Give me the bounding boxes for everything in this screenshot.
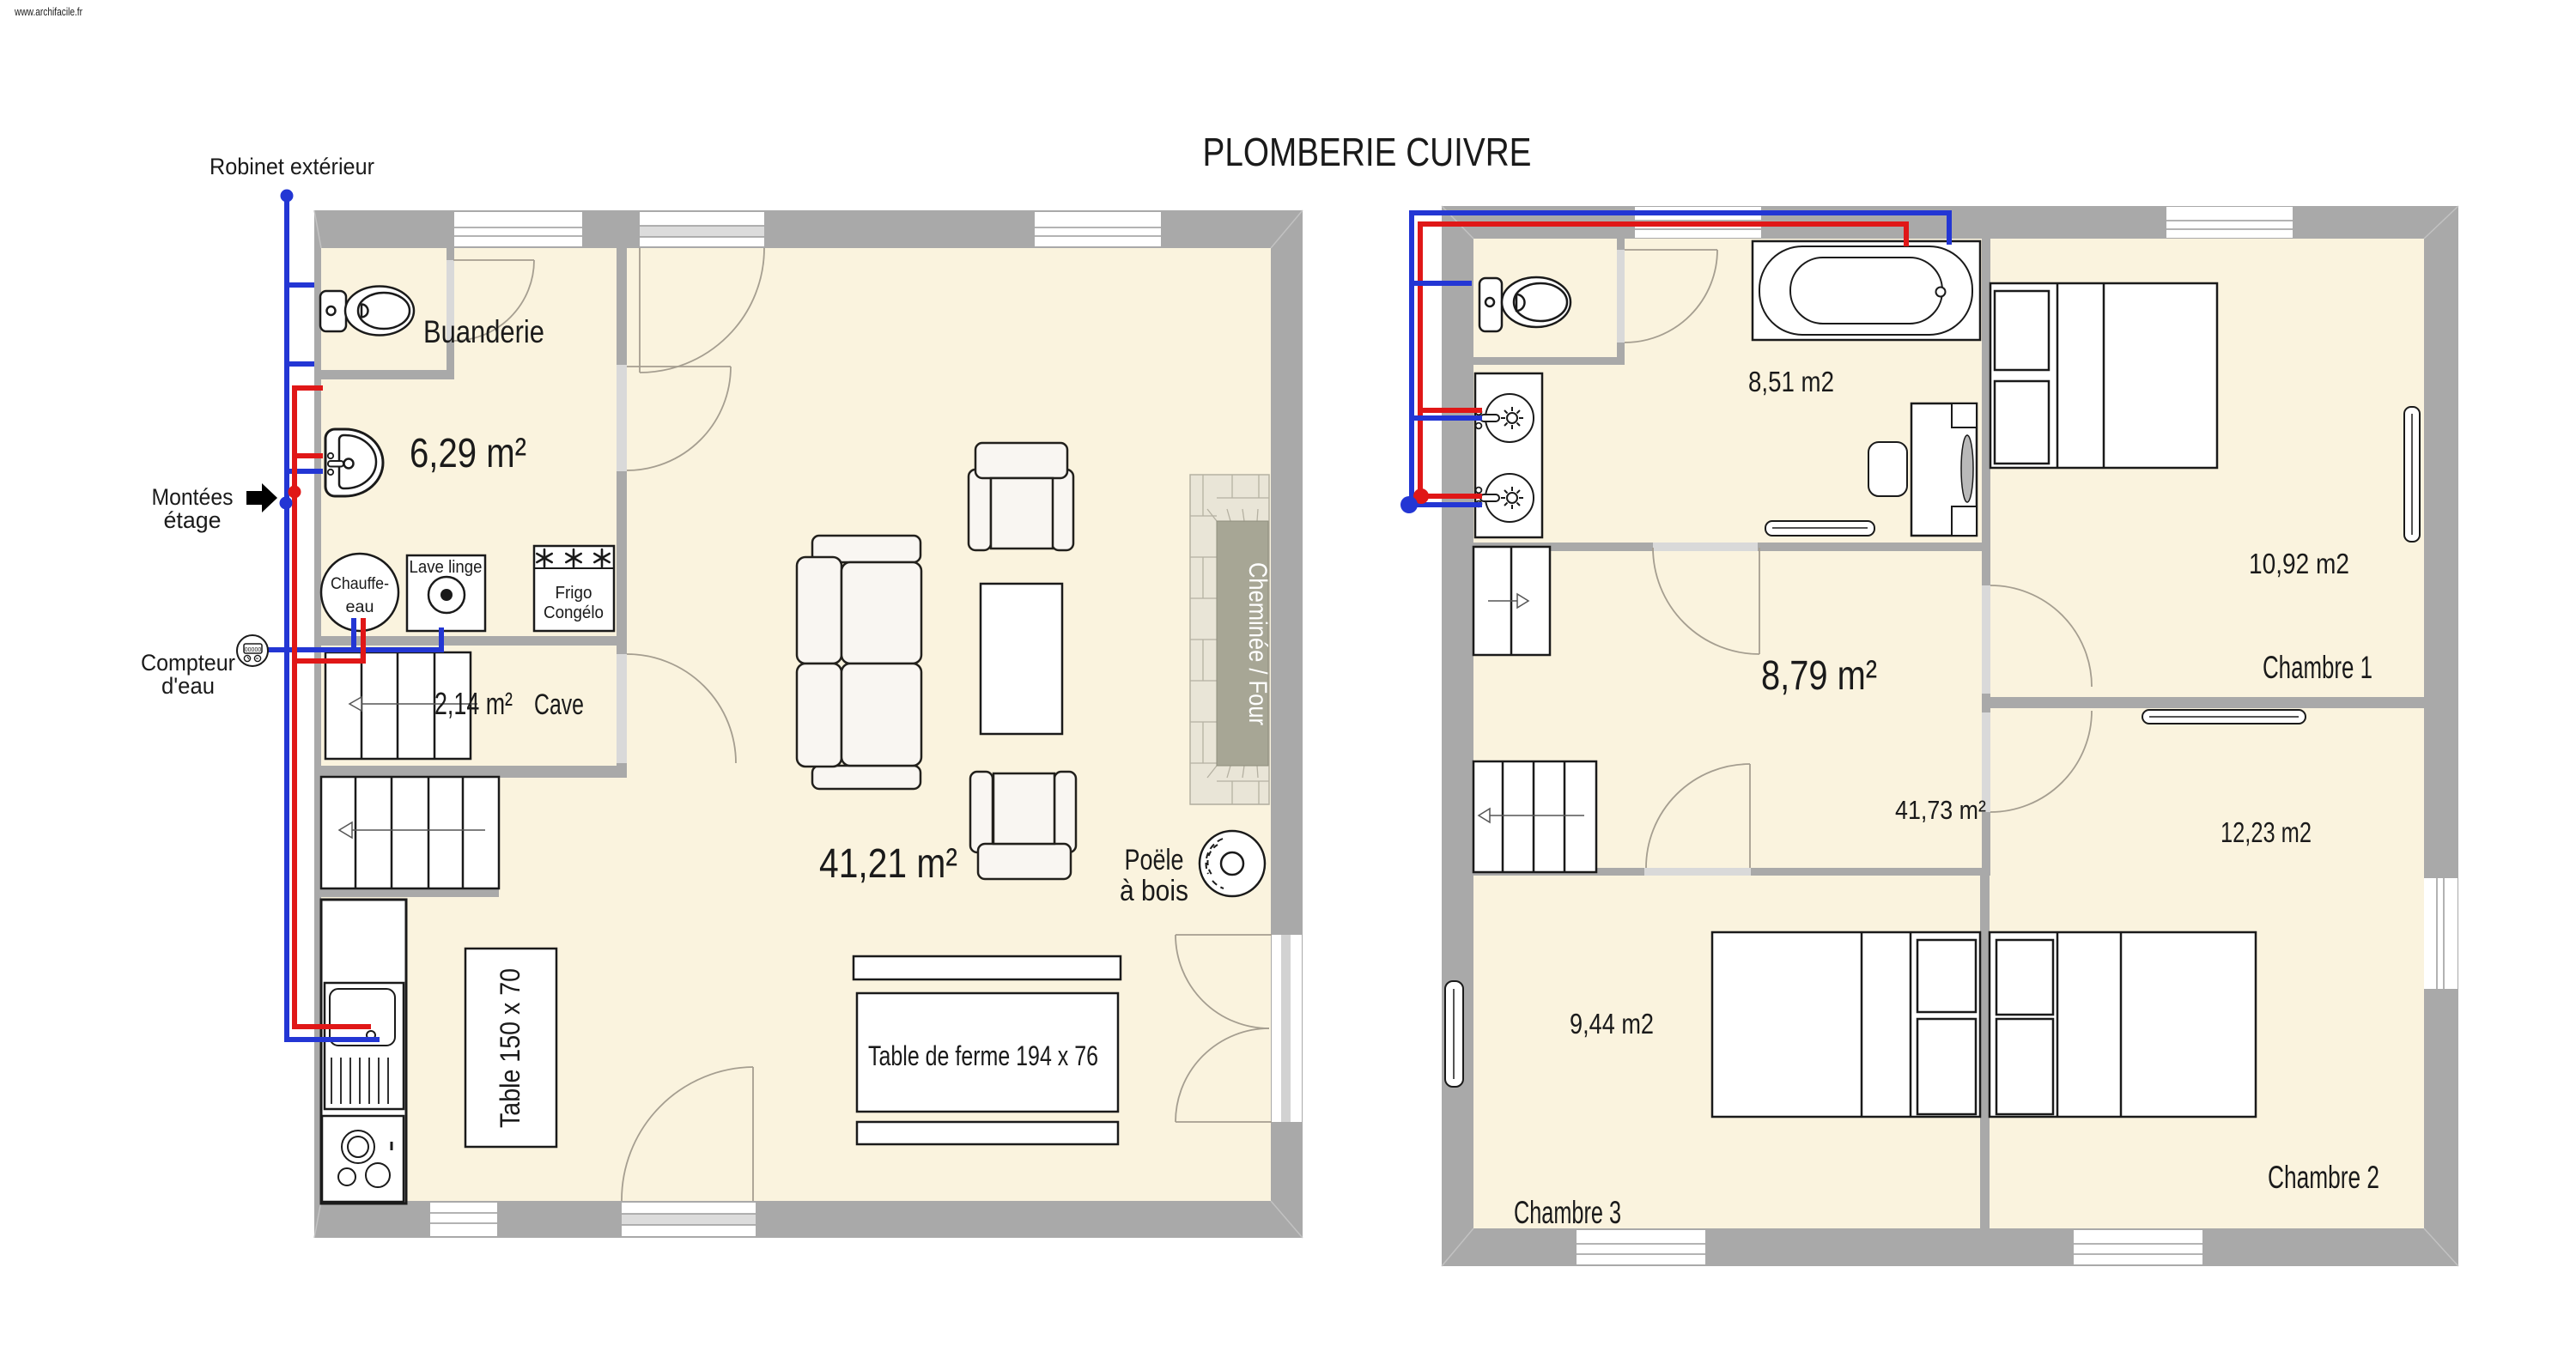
svg-text:00000: 00000 — [245, 647, 262, 653]
svg-text:8,51 m2: 8,51 m2 — [1748, 366, 1834, 397]
svg-text:Table 150 x 70: Table 150 x 70 — [495, 968, 526, 1128]
svg-text:Lave linge: Lave linge — [410, 558, 483, 577]
svg-text:www.archifacile.fr: www.archifacile.fr — [14, 5, 82, 18]
svg-text:Chambre 3: Chambre 3 — [1514, 1195, 1621, 1230]
svg-text:Cave: Cave — [534, 688, 584, 721]
svg-text:Table de ferme 194 x 76: Table de ferme 194 x 76 — [868, 1040, 1098, 1071]
svg-text:Poële: Poële — [1125, 844, 1184, 876]
svg-text:6,29 m²: 6,29 m² — [410, 431, 526, 476]
svg-text:Compteur: Compteur — [141, 650, 235, 676]
svg-text:10,92 m2: 10,92 m2 — [2249, 548, 2349, 579]
svg-text:Chauffe-: Chauffe- — [331, 575, 389, 593]
svg-text:Frigo: Frigo — [556, 584, 592, 603]
svg-text:12,23 m2: 12,23 m2 — [2221, 816, 2312, 848]
svg-text:Cheminée / Four: Cheminée / Four — [1243, 562, 1272, 725]
svg-text:Congélo: Congélo — [544, 603, 604, 622]
svg-text:Chambre 1: Chambre 1 — [2263, 650, 2372, 685]
svg-text:Chambre 2: Chambre 2 — [2268, 1160, 2379, 1195]
svg-text:Montées: Montées — [152, 484, 234, 510]
svg-text:8,79 m²: 8,79 m² — [1761, 653, 1877, 699]
svg-text:41,21 m²: 41,21 m² — [819, 841, 957, 887]
svg-text:PLOMBERIE CUIVRE: PLOMBERIE CUIVRE — [1203, 130, 1532, 174]
svg-text:étage: étage — [164, 507, 222, 533]
svg-text:d'eau: d'eau — [161, 673, 215, 699]
svg-text:Buanderie: Buanderie — [423, 314, 544, 349]
svg-text:41,73 m²: 41,73 m² — [1895, 795, 1986, 825]
svg-text:2,14 m²: 2,14 m² — [434, 686, 513, 721]
svg-text:eau: eau — [346, 598, 374, 616]
svg-text:à bois: à bois — [1120, 875, 1188, 907]
svg-text:9,44 m2: 9,44 m2 — [1570, 1008, 1654, 1040]
svg-text:Robinet extérieur: Robinet extérieur — [210, 154, 374, 179]
